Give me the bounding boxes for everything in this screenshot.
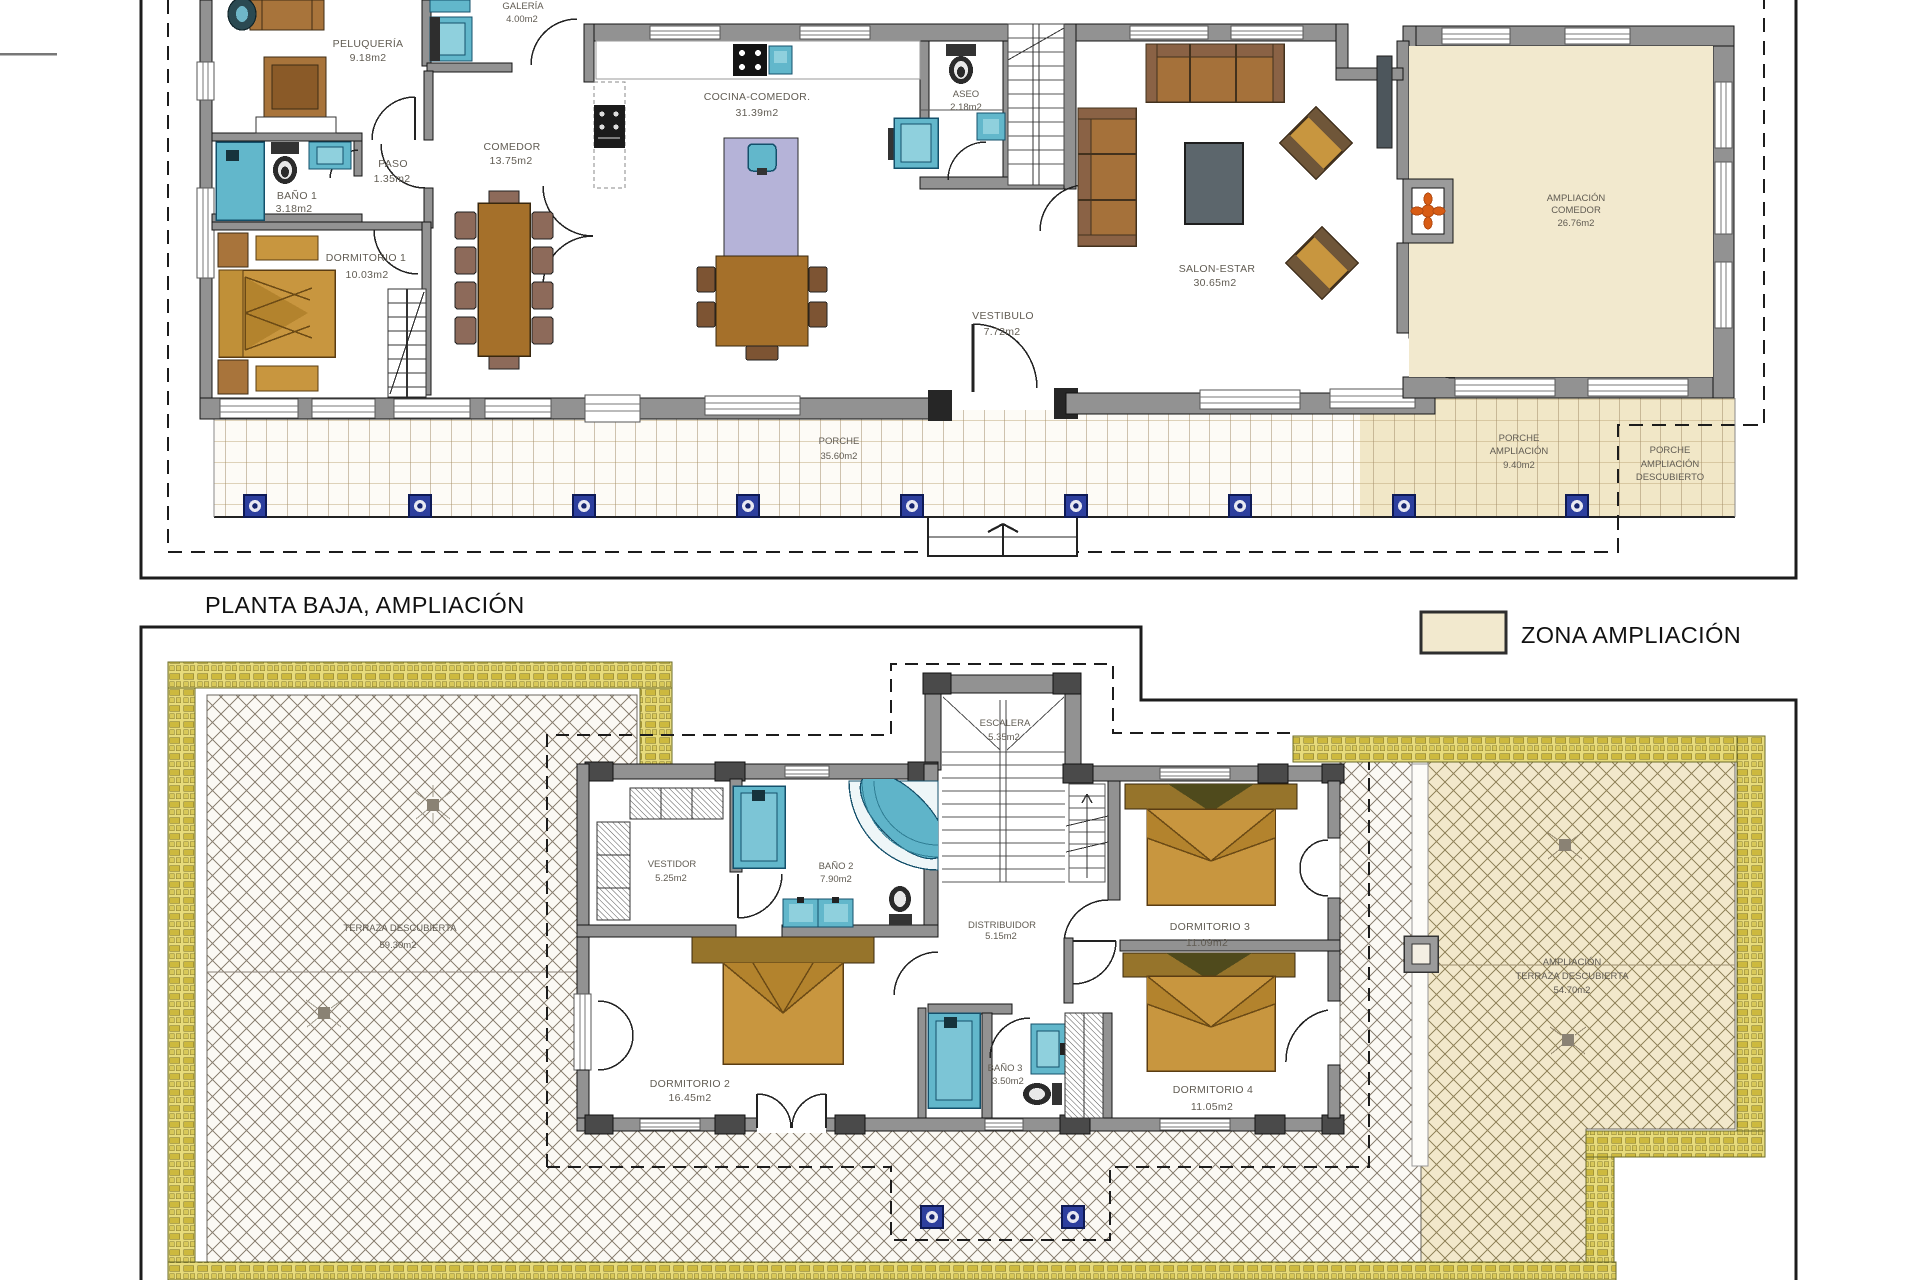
svg-text:54.70m2: 54.70m2 [1554,985,1591,996]
svg-text:PELUQUERÍA: PELUQUERÍA [333,37,404,50]
svg-text:COCINA-COMEDOR.: COCINA-COMEDOR. [704,91,811,103]
svg-text:11.05m2: 11.05m2 [1191,1101,1233,1113]
svg-text:BAÑO 2: BAÑO 2 [819,861,854,872]
svg-text:11.09m2: 11.09m2 [1186,937,1228,949]
svg-text:DORMITORIO 3: DORMITORIO 3 [1170,921,1250,933]
svg-text:COMEDOR: COMEDOR [484,141,541,153]
svg-text:ASEO: ASEO [953,89,979,100]
svg-text:BAÑO 1: BAÑO 1 [277,189,317,202]
svg-text:2.18m2: 2.18m2 [950,102,982,113]
svg-text:AMPLIACIÓN: AMPLIACIÓN [1490,446,1549,457]
svg-text:59.30m2: 59.30m2 [380,940,417,951]
svg-text:ESCALERA: ESCALERA [980,718,1031,729]
svg-text:7.90m2: 7.90m2 [820,874,852,885]
svg-text:DISTRIBUIDOR: DISTRIBUIDOR [968,920,1036,931]
svg-text:30.65m2: 30.65m2 [1194,277,1237,289]
svg-text:AMPLIACIÓN: AMPLIACIÓN [1641,459,1700,470]
svg-text:3.18m2: 3.18m2 [276,203,313,215]
svg-text:AMPLIACIÓN: AMPLIACIÓN [1547,193,1606,204]
svg-text:PORCHE: PORCHE [1650,445,1691,456]
svg-text:VESTIDOR: VESTIDOR [648,859,697,870]
svg-text:DORMITORIO 2: DORMITORIO 2 [650,1078,730,1090]
svg-text:PLANTA BAJA, AMPLIACIÓN: PLANTA BAJA, AMPLIACIÓN [205,592,525,618]
svg-text:VESTIBULO: VESTIBULO [972,310,1034,322]
svg-text:AMPLIACIÓN: AMPLIACIÓN [1543,957,1602,968]
svg-text:PASO: PASO [378,158,408,170]
svg-text:13.75m2: 13.75m2 [490,155,533,167]
svg-text:3.50m2: 3.50m2 [992,1076,1024,1087]
svg-text:10.03m2: 10.03m2 [346,269,389,281]
svg-text:PORCHE: PORCHE [819,436,860,447]
svg-text:COMEDOR: COMEDOR [1551,205,1601,216]
svg-text:7.72m2: 7.72m2 [984,326,1021,338]
svg-text:SALON-ESTAR: SALON-ESTAR [1179,263,1256,275]
svg-text:DORMITORIO 4: DORMITORIO 4 [1173,1084,1253,1096]
svg-text:5.25m2: 5.25m2 [655,873,687,884]
svg-text:ZONA AMPLIACIÓN: ZONA AMPLIACIÓN [1521,622,1741,648]
svg-text:1.35m2: 1.35m2 [374,173,411,185]
svg-text:26.76m2: 26.76m2 [1558,218,1595,229]
svg-text:16.45m2: 16.45m2 [669,1092,712,1104]
svg-text:BAÑO 3: BAÑO 3 [988,1063,1023,1074]
svg-text:TERRAZA DESCUBIERTA: TERRAZA DESCUBIERTA [1515,971,1629,982]
svg-text:5.15m2: 5.15m2 [985,931,1017,942]
svg-text:35.60m2: 35.60m2 [821,451,858,462]
svg-text:5.35m2: 5.35m2 [988,732,1020,743]
svg-text:DESCUBIERTO: DESCUBIERTO [1636,472,1704,483]
svg-text:GALERÍA: GALERÍA [502,1,544,12]
svg-text:9.40m2: 9.40m2 [1503,460,1535,471]
svg-text:4.00m2: 4.00m2 [506,14,538,25]
svg-text:9.18m2: 9.18m2 [350,52,387,64]
svg-text:PORCHE: PORCHE [1499,433,1540,444]
svg-text:31.39m2: 31.39m2 [736,107,779,119]
svg-text:DORMITORIO 1: DORMITORIO 1 [326,252,406,264]
svg-text:TERRAZA DESCUBIERTA: TERRAZA DESCUBIERTA [343,923,457,934]
